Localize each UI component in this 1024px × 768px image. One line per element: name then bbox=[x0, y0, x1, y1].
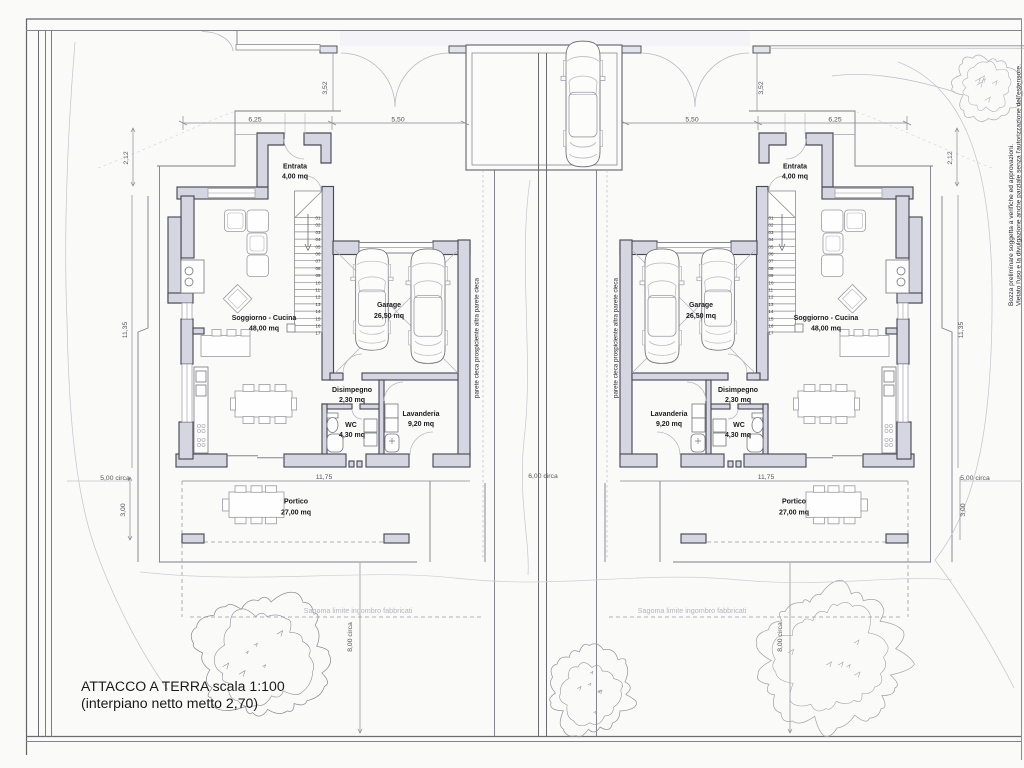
svg-text:15: 15 bbox=[316, 316, 321, 321]
svg-text:4,00 mq: 4,00 mq bbox=[782, 174, 808, 181]
svg-text:5,00 circa: 5,00 circa bbox=[100, 475, 130, 482]
svg-text:4,30 mq: 4,30 mq bbox=[339, 432, 365, 439]
svg-text:48,00 mq: 48,00 mq bbox=[249, 326, 279, 333]
svg-text:06: 06 bbox=[769, 252, 774, 257]
svg-text:15: 15 bbox=[769, 316, 774, 321]
svg-text:8,00 circa: 8,00 circa bbox=[347, 622, 354, 652]
svg-text:ATTACCO A TERRA scala 1:100: ATTACCO A TERRA scala 1:100 bbox=[81, 678, 285, 694]
svg-text:WC: WC bbox=[345, 422, 357, 429]
svg-text:Vietato l'uso e la divulgazion: Vietato l'uso e la divulgazione anche pa… bbox=[1016, 64, 1023, 306]
svg-text:6,25: 6,25 bbox=[248, 117, 261, 124]
svg-text:4,00 mq: 4,00 mq bbox=[282, 174, 308, 181]
svg-text:Entrata: Entrata bbox=[283, 164, 307, 171]
svg-text:3,52: 3,52 bbox=[758, 81, 765, 94]
svg-text:11: 11 bbox=[769, 288, 774, 293]
svg-text:17: 17 bbox=[769, 331, 774, 336]
svg-text:04: 04 bbox=[769, 237, 774, 242]
svg-text:9,20 mq: 9,20 mq bbox=[408, 421, 434, 428]
svg-text:05: 05 bbox=[769, 244, 774, 249]
svg-text:11,75: 11,75 bbox=[316, 474, 333, 481]
svg-text:10: 10 bbox=[769, 280, 774, 285]
svg-text:26,50 mq: 26,50 mq bbox=[686, 313, 716, 320]
svg-text:WC: WC bbox=[733, 422, 745, 429]
svg-text:parete cieca prospiciente altr: parete cieca prospiciente altra parete c… bbox=[613, 277, 620, 398]
svg-text:01: 01 bbox=[769, 216, 774, 221]
svg-text:5,50: 5,50 bbox=[391, 117, 404, 124]
svg-text:Garage: Garage bbox=[689, 302, 713, 309]
svg-text:Portico: Portico bbox=[284, 499, 308, 506]
svg-text:04: 04 bbox=[316, 237, 321, 242]
svg-text:3,00: 3,00 bbox=[120, 503, 127, 516]
svg-text:14: 14 bbox=[316, 309, 321, 314]
svg-text:01: 01 bbox=[316, 216, 321, 221]
svg-text:3,52: 3,52 bbox=[322, 81, 329, 94]
svg-text:(interpiano netto metto 2,70): (interpiano netto metto 2,70) bbox=[81, 695, 258, 711]
svg-text:2,30 mq: 2,30 mq bbox=[725, 397, 751, 404]
svg-text:2,12: 2,12 bbox=[123, 151, 130, 164]
svg-text:26,50 mq: 26,50 mq bbox=[374, 313, 404, 320]
svg-text:09: 09 bbox=[769, 273, 774, 278]
svg-text:2,12: 2,12 bbox=[947, 151, 954, 164]
svg-text:03: 03 bbox=[769, 230, 774, 235]
svg-text:Lavanderia: Lavanderia bbox=[651, 411, 688, 418]
svg-text:27,00 mq: 27,00 mq bbox=[281, 510, 311, 517]
svg-text:Soggiorno - Cucina: Soggiorno - Cucina bbox=[232, 315, 297, 322]
svg-text:08: 08 bbox=[769, 266, 774, 271]
svg-text:4,30 mq: 4,30 mq bbox=[725, 432, 751, 439]
svg-text:Sagoma limite ingombro fabbric: Sagoma limite ingombro fabbricati bbox=[638, 606, 747, 615]
svg-text:11: 11 bbox=[316, 288, 321, 293]
svg-text:6,25: 6,25 bbox=[828, 117, 841, 124]
svg-text:12: 12 bbox=[769, 295, 774, 300]
svg-text:11,35: 11,35 bbox=[958, 322, 965, 339]
svg-text:Sagoma limite ingombro fabbric: Sagoma limite ingombro fabbricati bbox=[304, 606, 413, 615]
svg-text:06: 06 bbox=[316, 252, 321, 257]
svg-text:14: 14 bbox=[769, 309, 774, 314]
svg-text:03: 03 bbox=[316, 230, 321, 235]
svg-text:05: 05 bbox=[316, 244, 321, 249]
svg-text:02: 02 bbox=[769, 223, 774, 228]
svg-text:Soggiorno - Cucina: Soggiorno - Cucina bbox=[794, 315, 859, 322]
svg-text:17: 17 bbox=[316, 331, 321, 336]
svg-text:10: 10 bbox=[316, 280, 321, 285]
svg-text:6,00 circa: 6,00 circa bbox=[528, 473, 558, 480]
svg-text:13: 13 bbox=[316, 302, 321, 307]
svg-text:09: 09 bbox=[316, 273, 321, 278]
svg-text:Lavanderia: Lavanderia bbox=[403, 411, 440, 418]
svg-text:11,35: 11,35 bbox=[122, 322, 129, 339]
svg-text:Bozza preliminare soggetta a v: Bozza preliminare soggetta a verifiche e… bbox=[1008, 144, 1015, 306]
svg-text:parete cieca prospiciente altr: parete cieca prospiciente altra parete c… bbox=[474, 277, 481, 398]
svg-text:Disimpegno: Disimpegno bbox=[332, 387, 372, 394]
svg-text:07: 07 bbox=[316, 259, 321, 264]
svg-text:16: 16 bbox=[769, 324, 774, 329]
svg-text:9,20 mq: 9,20 mq bbox=[656, 421, 682, 428]
svg-text:2,30 mq: 2,30 mq bbox=[339, 397, 365, 404]
svg-text:11,75: 11,75 bbox=[758, 474, 775, 481]
svg-text:02: 02 bbox=[316, 223, 321, 228]
svg-text:8,00 circa: 8,00 circa bbox=[777, 622, 784, 652]
svg-text:12: 12 bbox=[316, 295, 321, 300]
svg-text:Disimpegno: Disimpegno bbox=[718, 387, 758, 394]
svg-text:27,00 mq: 27,00 mq bbox=[779, 510, 809, 517]
svg-text:3,00: 3,00 bbox=[960, 503, 967, 516]
svg-text:48,00 mq: 48,00 mq bbox=[811, 326, 841, 333]
svg-text:Entrata: Entrata bbox=[783, 164, 807, 171]
svg-text:5,00 circa: 5,00 circa bbox=[960, 475, 990, 482]
svg-text:Portico: Portico bbox=[782, 499, 806, 506]
svg-text:08: 08 bbox=[316, 266, 321, 271]
svg-text:16: 16 bbox=[316, 324, 321, 329]
svg-text:Garage: Garage bbox=[377, 302, 401, 309]
svg-text:5,50: 5,50 bbox=[685, 117, 698, 124]
svg-text:13: 13 bbox=[769, 302, 774, 307]
svg-text:07: 07 bbox=[769, 259, 774, 264]
